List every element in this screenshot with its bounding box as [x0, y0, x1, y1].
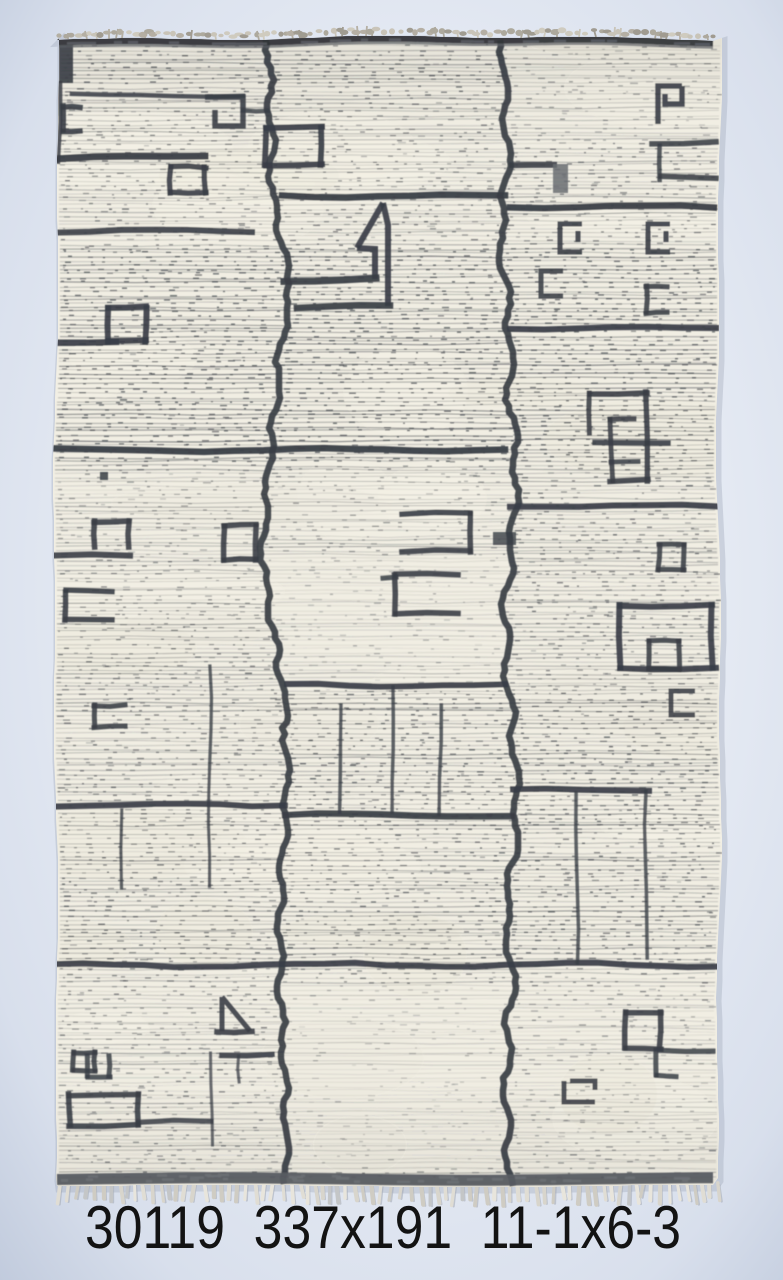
svg-text:30119 337x191 11-1x6-3: 30119 337x191 11-1x6-3	[85, 1193, 681, 1260]
